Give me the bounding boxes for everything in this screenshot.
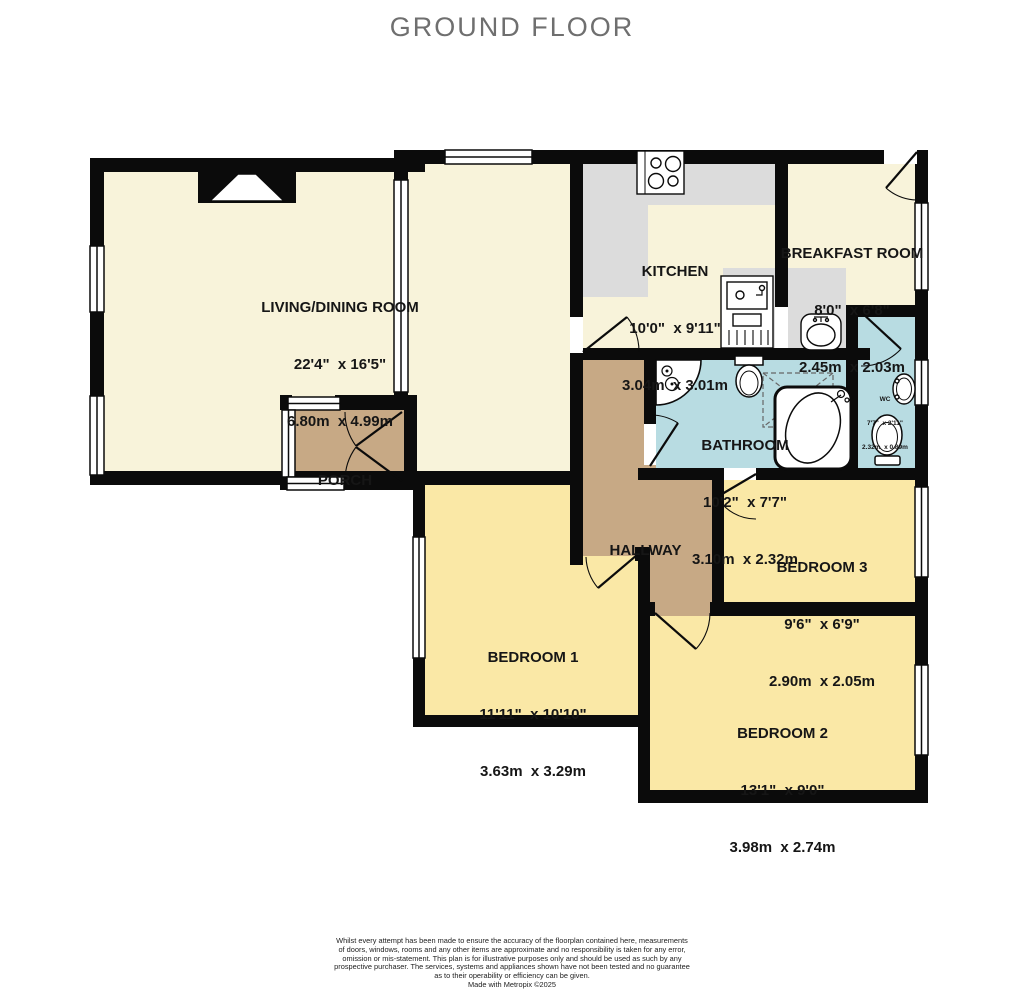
room-dims-metric: 3.04m x 3.01m (590, 376, 760, 395)
room-name: WC (856, 396, 914, 404)
room-name: HALLWAY (578, 541, 713, 560)
room-name: KITCHEN (590, 262, 760, 281)
room-label-hallway: HALLWAY (578, 503, 713, 598)
room-name: BATHROOM (650, 436, 840, 455)
room-label-porch: PORCH (295, 433, 395, 528)
room-dims-metric: 2.90m x 2.05m (728, 672, 916, 691)
room-name: PORCH (295, 471, 395, 490)
room-dims-metric: 2.45m x 2.03m (772, 358, 932, 377)
room-dims-imperial: 11'11" x 10'10" (428, 705, 638, 724)
room-label-bedroom1: BEDROOM 1 11'11" x 10'10" 3.63m x 3.29m (428, 610, 638, 819)
room-name: BEDROOM 3 (728, 558, 916, 577)
window (413, 537, 425, 658)
window (915, 487, 928, 577)
room-dims-imperial: 8'0" x 6'8" (772, 301, 932, 320)
window (90, 396, 104, 475)
room-name: LIVING/DINING ROOM (235, 298, 445, 317)
room-dims-metric: 3.63m x 3.29m (428, 762, 638, 781)
room-dims-imperial: 7'7" x 2'11" (856, 420, 914, 428)
room-dims-metric: 2.32m x 0.89m (856, 444, 914, 452)
window (915, 665, 928, 755)
window (445, 150, 532, 164)
disclaimer-line: Made with Metropix ©2025 (0, 981, 1024, 989)
hob-icon (637, 151, 684, 194)
room-label-wc: WC 7'7" x 2'11" 2.32m x 0.89m (856, 380, 914, 468)
room-dims-imperial: 9'6" x 6'9" (728, 615, 916, 634)
disclaimer-text: Whilst every attempt has been made to en… (0, 937, 1024, 989)
room-dims-imperial: 13'1" x 9'0" (670, 781, 895, 800)
room-dims-metric: 3.98m x 2.74m (670, 838, 895, 857)
room-name: BREAKFAST ROOM (772, 244, 932, 263)
window (90, 246, 104, 312)
room-label-bedroom3: BEDROOM 3 9'6" x 6'9" 2.90m x 2.05m (728, 520, 916, 729)
room-name: BEDROOM 1 (428, 648, 638, 667)
floorplan-page: GROUND FLOOR (0, 0, 1024, 989)
room-dims-imperial: 22'4" x 16'5" (235, 355, 445, 374)
room-dims-metric: 6.80m x 4.99m (235, 412, 445, 431)
room-dims-imperial: 10'0" x 9'11" (590, 319, 760, 338)
